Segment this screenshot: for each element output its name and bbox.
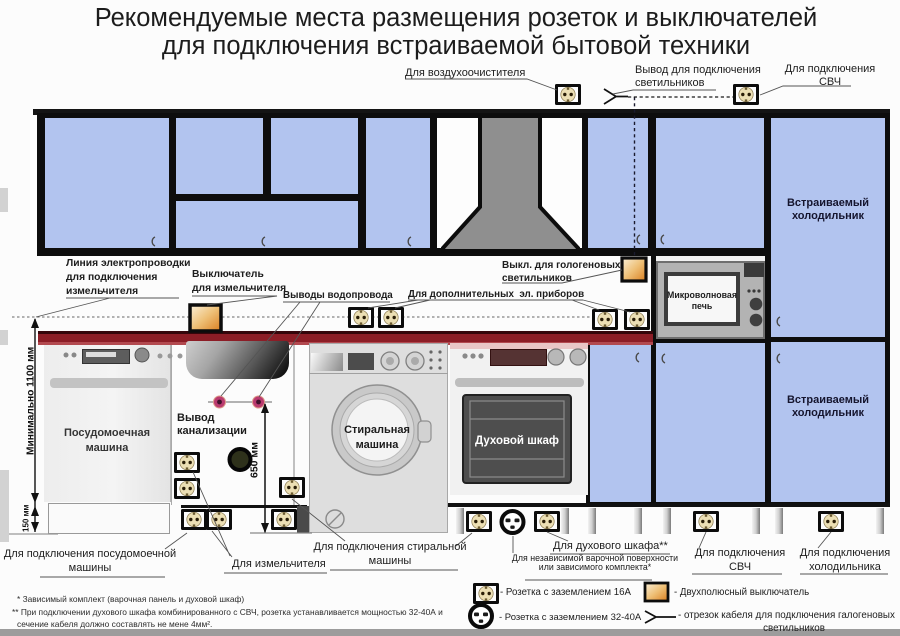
svg-text:150 мм: 150 мм (22, 505, 31, 532)
svg-text:Минимально 1100 мм: Минимально 1100 мм (26, 347, 37, 455)
svg-text:650 мм: 650 мм (249, 442, 261, 478)
